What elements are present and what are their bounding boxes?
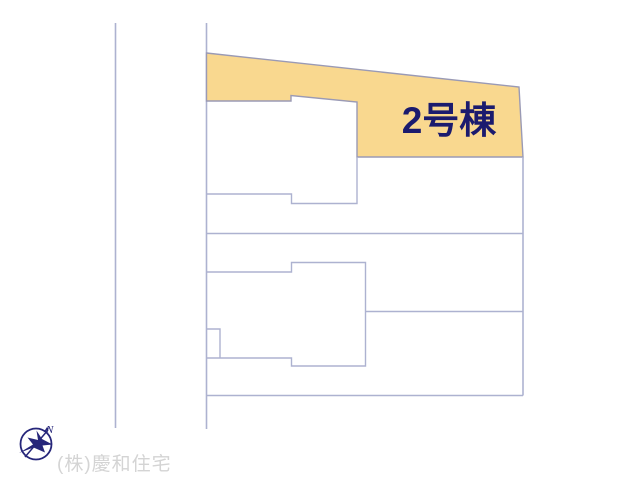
house-1-footprint-outline xyxy=(207,157,358,204)
site-plan-map: 2号棟 N xyxy=(0,0,640,480)
house-2-footprint-outline xyxy=(207,263,366,367)
house-2-entrance-notch xyxy=(207,329,221,358)
lot-2-label: 2号棟 xyxy=(402,100,498,141)
north-compass-icon: N xyxy=(19,424,54,460)
site-plan-page: 2号棟 N (株)慶和住宅 xyxy=(0,0,640,480)
compass-north-label: N xyxy=(45,424,54,436)
lot-2-label-text: 2号棟 xyxy=(402,100,498,141)
company-watermark: (株)慶和住宅 xyxy=(57,449,172,476)
